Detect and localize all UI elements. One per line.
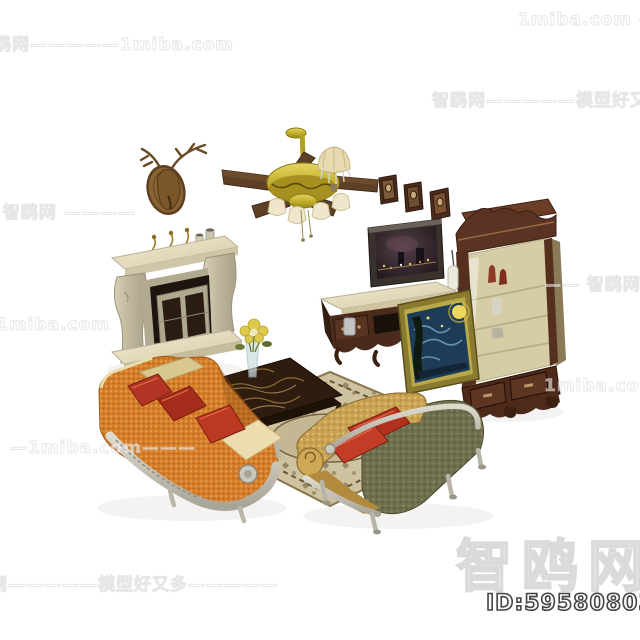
fireplace: [112, 228, 242, 372]
portrait-frames: [379, 175, 450, 220]
wall-tv: [368, 219, 444, 287]
model-preview-image: 智鸥网—————1miba.com 1miba.com —————— 智鸥网——…: [0, 0, 640, 640]
glass-cup: [344, 318, 355, 335]
starry-night-painting: [398, 290, 479, 394]
ceiling-fan: [222, 128, 378, 242]
living-room-3d-render: [0, 0, 640, 640]
deer-head-mount: [141, 144, 206, 218]
model-id: ID:595808035: [486, 591, 640, 616]
